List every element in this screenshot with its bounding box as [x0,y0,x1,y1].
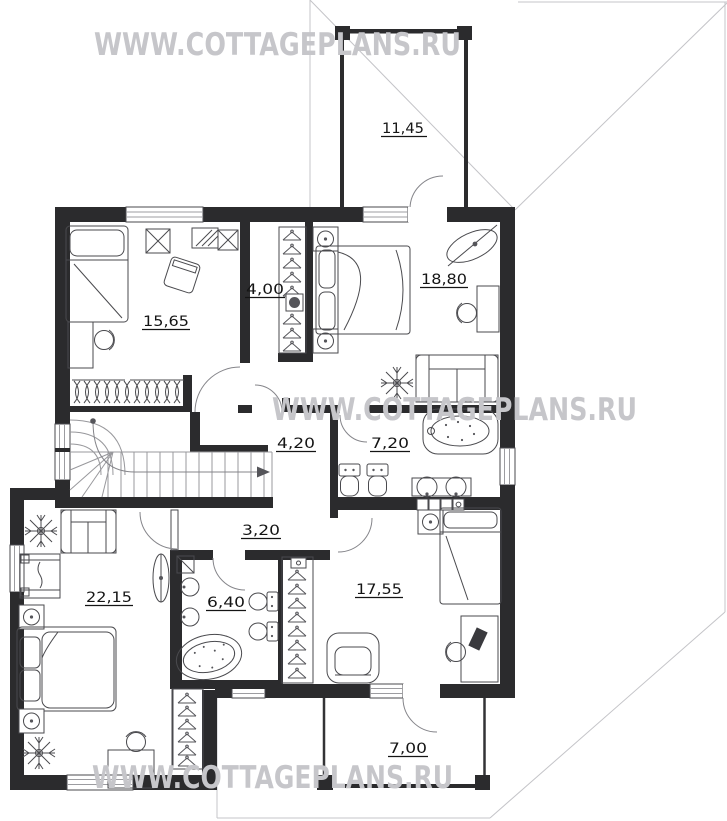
toilet [339,464,360,496]
window [363,207,408,222]
bathtub [172,629,246,686]
label-stair-hall: 4,20 [277,436,315,452]
floor-plan-page: 11,45 15,65 4,00 18,80 4,20 7,20 3,20 22… [0,0,727,821]
bed-pillow [319,292,335,330]
door-leaf-bedroom-bottom-left [171,510,178,550]
watermark-middle: WWW.COTTAGEPLANS.RU [272,392,637,428]
chair [126,732,146,752]
crib [20,554,60,598]
floor-plan-drawing: 11,45 15,65 4,00 18,80 4,20 7,20 3,20 22… [0,0,727,821]
armchair [163,256,201,294]
balcony-door-arc [410,176,443,209]
bed [66,226,128,322]
nightstand [19,709,44,733]
label-dressing-room: 4,00 [246,282,284,298]
watermark-bottom: WWW.COTTAGEPLANS.RU [92,760,453,796]
label-bedroom-top-left: 15,65 [143,314,189,330]
label-bedroom-bottom-right: 17,55 [356,582,402,598]
bed [316,246,410,334]
chair [95,330,115,350]
staircase [70,418,272,497]
door-arc-bedroom-top-left [195,367,240,412]
terrace-door-opening [403,684,440,698]
shelf [192,228,218,248]
label-terrace: 7,00 [389,741,427,757]
label-balcony: 11,45 [382,121,424,137]
window [370,684,403,698]
radiator [72,380,184,403]
toilet [367,464,388,496]
balcony-door-opening [408,207,447,222]
window [500,448,515,485]
window [10,545,24,592]
door-arc-bathroom-bottom [213,558,245,590]
bed [17,627,116,711]
bed-pillow [319,250,335,288]
decor-mirror [153,554,169,602]
sofa [61,510,116,553]
armchair [327,633,379,683]
shelf [417,499,428,510]
label-bathroom-top: 7,20 [371,436,409,452]
room-bathroom-bottom [172,556,278,685]
laptop [468,627,487,650]
nightstand [418,510,443,534]
watermark-top: WWW.COTTAGEPLANS.RU [94,27,461,63]
label-bathroom-bottom: 6,40 [207,595,245,611]
desk [68,322,93,368]
label-bedroom-top-right: 18,80 [421,272,467,288]
nightstand [19,605,44,629]
toilet [249,592,278,611]
vanity [412,477,471,497]
room-bedroom-top-right [313,223,502,402]
bed-pillow [70,230,124,256]
label-corridor: 3,20 [242,523,280,539]
plant [25,515,57,547]
plant [23,737,55,769]
wardrobe-rail [172,689,203,769]
toilet [249,622,278,641]
door-arc-bedroom-bottom-right [338,518,372,552]
desk [477,286,499,332]
chair [457,303,477,323]
shelf [429,499,440,510]
door-arc-terrace [403,698,437,732]
bed-blanket [42,632,114,708]
label-bedroom-bottom-left: 22,15 [86,590,132,606]
chair [446,642,466,662]
bed [440,508,501,604]
decor-mirror [442,223,502,269]
bed-pillow [444,512,497,528]
wardrobe-rail [282,557,313,683]
window [126,207,203,222]
